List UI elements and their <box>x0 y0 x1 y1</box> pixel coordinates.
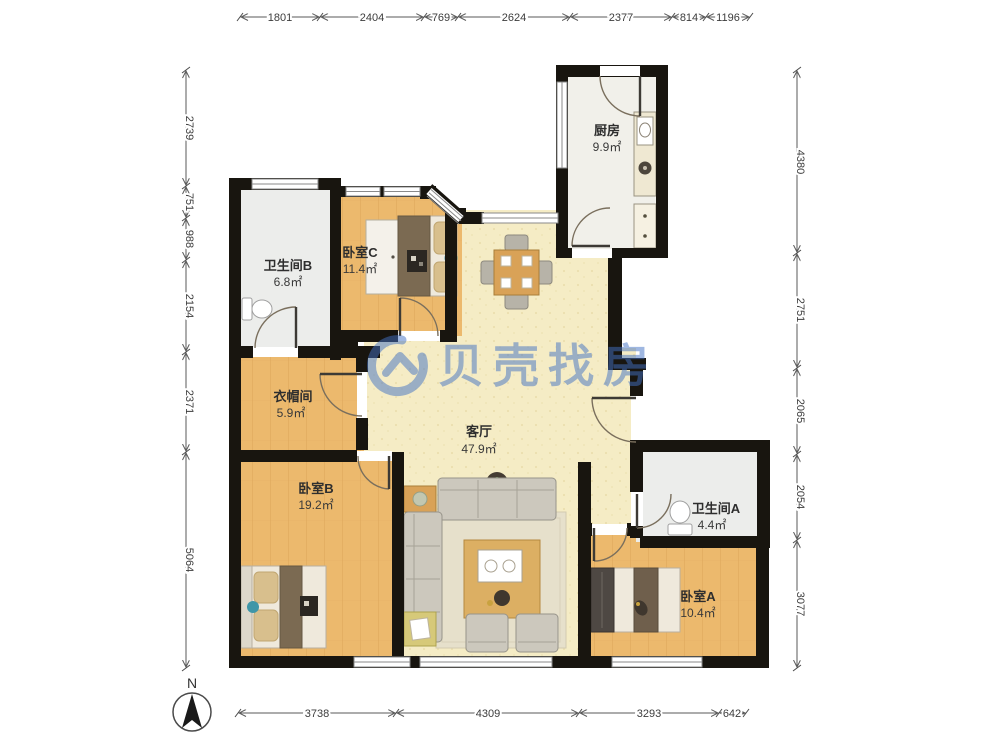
dim-right-2: 2751 <box>794 298 806 322</box>
dim-right-5: 3077 <box>794 592 806 616</box>
bathroom-b-toilet <box>242 298 272 320</box>
bathroom-a-toilet <box>668 501 692 535</box>
bedroom-b-furniture <box>241 566 326 648</box>
compass-north-label: N <box>187 675 197 691</box>
dim-right-4: 2054 <box>794 485 806 509</box>
bedroom-b-area: 19.2㎡ <box>298 498 333 512</box>
bathroom-b-window <box>252 179 318 189</box>
dim-bottom-4: 642 <box>723 708 741 720</box>
dim-right-3: 2065 <box>794 399 806 423</box>
living-room-furniture <box>404 472 566 652</box>
floor-plan-drawing: 厨房 9.9㎡ 卫生间B 6.8㎡ 卧室C 11.4㎡ 衣帽间 5.9㎡ 客厅 … <box>0 0 990 741</box>
living-room-area: 47.9㎡ <box>461 442 496 456</box>
dimension-chain-right: 4380 2751 2065 2054 3077 <box>793 67 806 671</box>
dim-bottom-2: 4309 <box>476 708 500 720</box>
bedroom-c-furniture <box>366 216 458 296</box>
cloakroom-label: 衣帽间 <box>273 389 312 404</box>
dim-top-6: 814 <box>680 12 698 24</box>
dimension-chain-left: 2739 751 988 2154 2371 5064 <box>182 67 195 671</box>
bathroom-a-area: 4.4㎡ <box>698 518 727 532</box>
bathroom-b-area: 6.8㎡ <box>274 275 303 289</box>
bedroom-a-furniture <box>591 568 680 632</box>
bedroom-a-area: 10.4㎡ <box>680 606 715 620</box>
dim-left-2: 751 <box>183 193 195 211</box>
dimension-chain-top: 1801 2404 769 2624 2377 814 1196 <box>237 12 753 24</box>
dim-top-1: 1801 <box>268 12 292 24</box>
bathroom-a-label: 卫生间A <box>692 501 741 516</box>
bedroom-c-window-2 <box>384 187 420 196</box>
cloakroom-floor <box>234 352 364 456</box>
dim-top-4: 2624 <box>502 12 526 24</box>
dim-top-5: 2377 <box>609 12 633 24</box>
dim-top-7: 1196 <box>716 12 740 24</box>
dim-top-2: 2404 <box>360 12 384 24</box>
bedroom-c-label: 卧室C <box>342 245 378 260</box>
bedroom-a-label: 卧室A <box>680 589 716 604</box>
dim-right-1: 4380 <box>794 150 806 174</box>
bedroom-a-window <box>612 657 702 667</box>
bedroom-c-window-1 <box>346 187 380 196</box>
dim-bottom-1: 3738 <box>305 708 329 720</box>
compass-north-arrow-icon <box>182 694 202 728</box>
kitchen-fixtures <box>634 112 656 248</box>
dim-left-4: 2154 <box>183 294 195 318</box>
dim-left-6: 5064 <box>183 548 195 572</box>
bedroom-c-area: 11.4㎡ <box>343 262 377 276</box>
bedroom-b-window <box>354 657 410 667</box>
living-room-window <box>420 657 552 667</box>
compass: N <box>173 675 211 731</box>
bathroom-b-label: 卫生间B <box>264 258 312 273</box>
bedroom-b-label: 卧室B <box>298 481 333 496</box>
dining-window <box>482 213 558 223</box>
living-room-label: 客厅 <box>466 424 492 439</box>
cloakroom-area: 5.9㎡ <box>277 406 306 420</box>
dim-left-5: 2371 <box>183 390 195 414</box>
dim-left-3: 988 <box>183 230 195 248</box>
dim-bottom-3: 3293 <box>637 708 661 720</box>
kitchen-area: 9.9㎡ <box>593 140 622 154</box>
kitchen-label: 厨房 <box>594 123 620 138</box>
dim-left-1: 2739 <box>183 116 195 140</box>
kitchen-window <box>557 82 567 168</box>
floor-plan-page: 厨房 9.9㎡ 卫生间B 6.8㎡ 卧室C 11.4㎡ 衣帽间 5.9㎡ 客厅 … <box>0 0 990 741</box>
watermark-text: 贝壳找房 <box>438 340 658 392</box>
dimension-chain-bottom: 3738 4309 3293 642 <box>235 708 749 720</box>
dim-top-3: 769 <box>432 12 450 24</box>
